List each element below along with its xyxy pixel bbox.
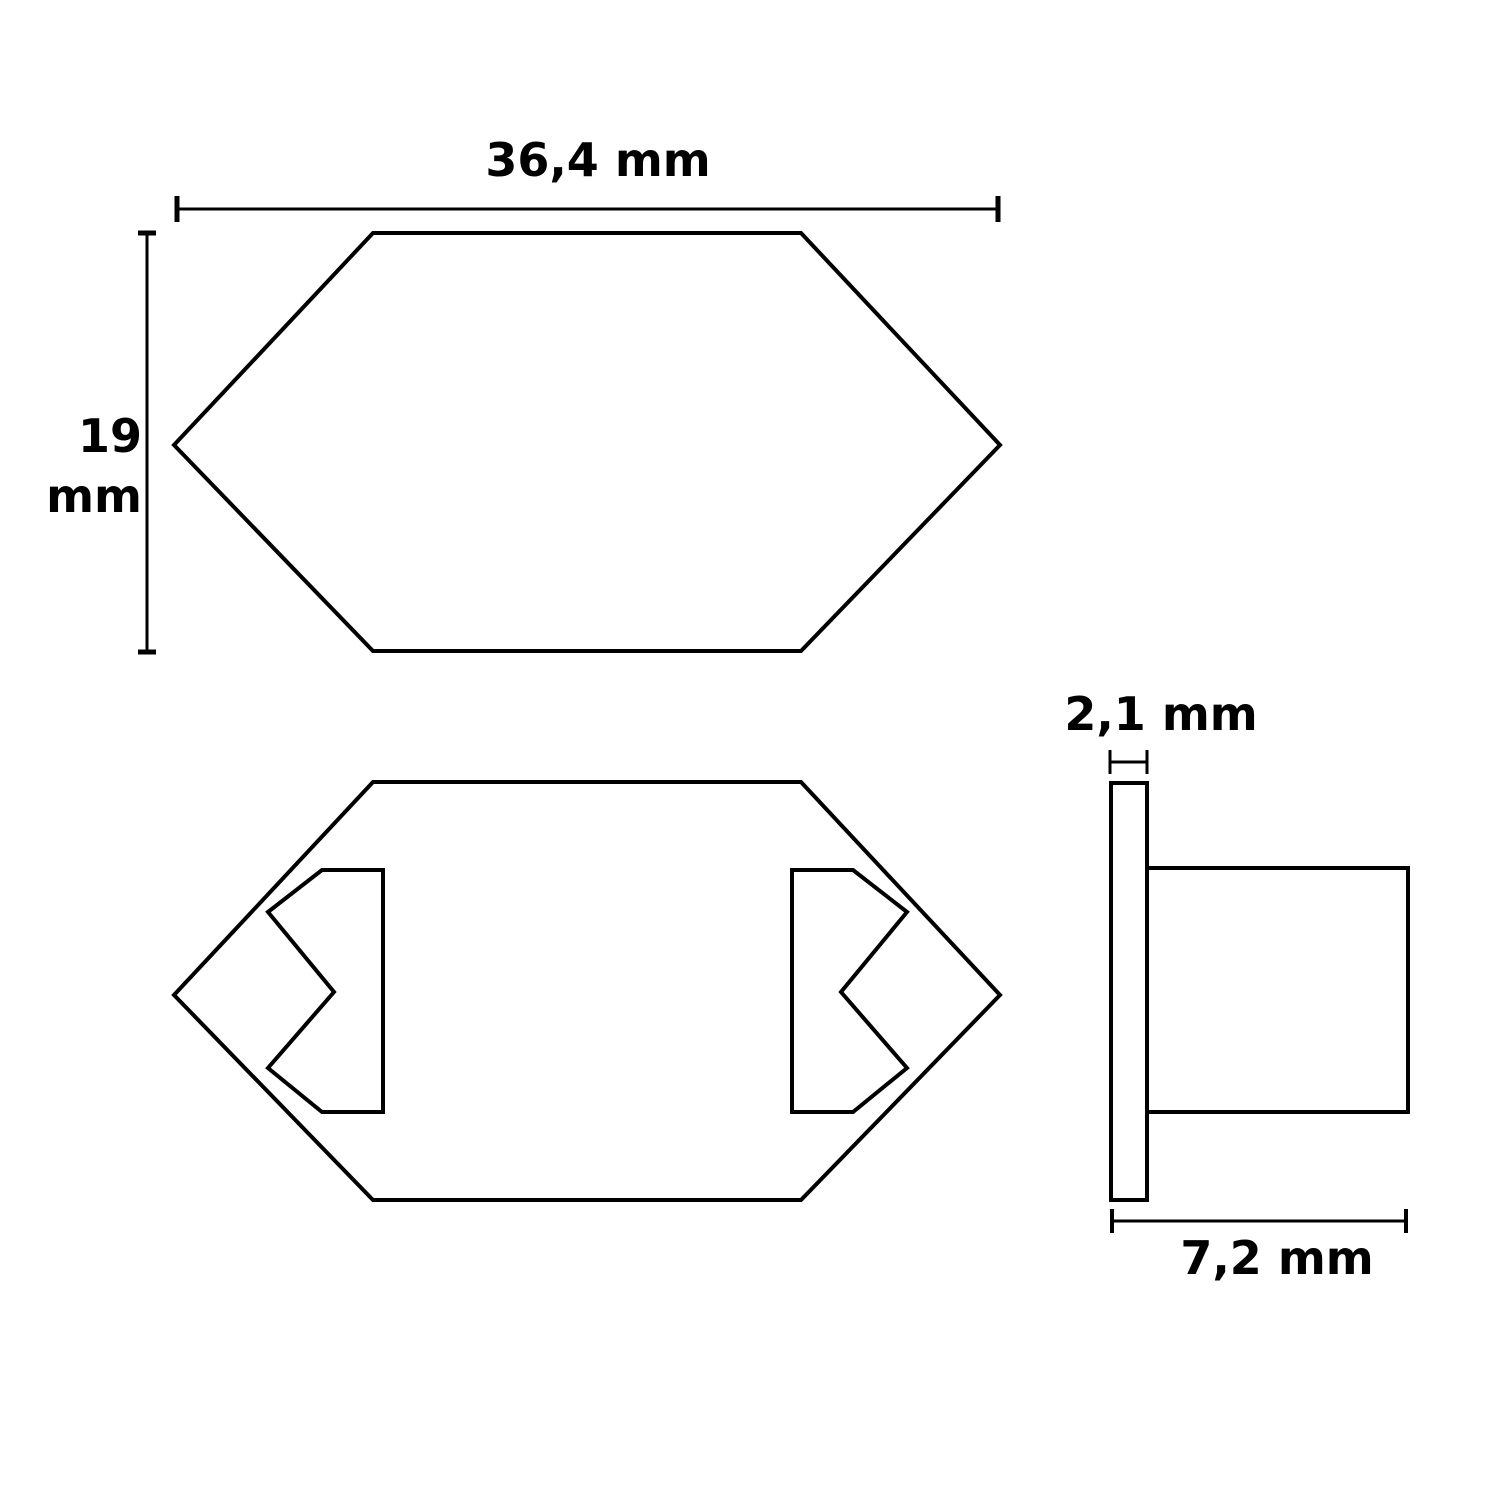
back-view-left-clip xyxy=(268,870,383,1112)
width-dimension-label: 36,4 mm xyxy=(485,133,710,187)
front-view-hexagon-outline xyxy=(174,233,1000,651)
back-view-right-clip xyxy=(792,870,907,1112)
side-view-flange xyxy=(1111,783,1147,1200)
technical-drawing-page: 36,4 mm 19 mm 2,1 mm 7,2 mm xyxy=(0,0,1500,1500)
flange-thickness-dimension-label: 2,1 mm xyxy=(1064,687,1257,741)
drawing-canvas: 36,4 mm 19 mm 2,1 mm 7,2 mm xyxy=(0,0,1500,1500)
depth-dimension-label: 7,2 mm xyxy=(1180,1231,1373,1285)
height-dimension-value: 19 xyxy=(78,409,142,463)
back-view-hexagon-outline xyxy=(174,782,1000,1200)
height-dimension-unit: mm xyxy=(46,469,142,523)
side-view-body xyxy=(1147,868,1408,1112)
